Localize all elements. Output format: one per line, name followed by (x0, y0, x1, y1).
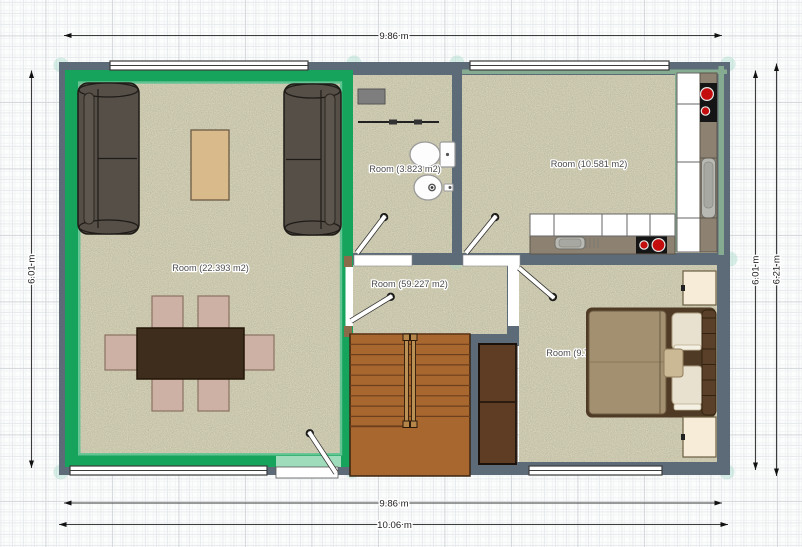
svg-text:Room (59.227 m2): Room (59.227 m2) (371, 279, 448, 289)
svg-text:6.01 m: 6.01 m (27, 255, 38, 284)
svg-text:Room (22.393 m2): Room (22.393 m2) (172, 263, 249, 273)
svg-text:9.86 m: 9.86 m (379, 499, 408, 510)
svg-text:Room (3.823 m2): Room (3.823 m2) (369, 164, 441, 174)
svg-text:6.21 m: 6.21 m (772, 255, 783, 284)
svg-text:10.06 m: 10.06 m (377, 520, 412, 531)
svg-text:Room (10.581 m2): Room (10.581 m2) (551, 159, 628, 169)
svg-text:9.86 m: 9.86 m (379, 31, 408, 42)
svg-text:6.01 m: 6.01 m (751, 256, 762, 285)
